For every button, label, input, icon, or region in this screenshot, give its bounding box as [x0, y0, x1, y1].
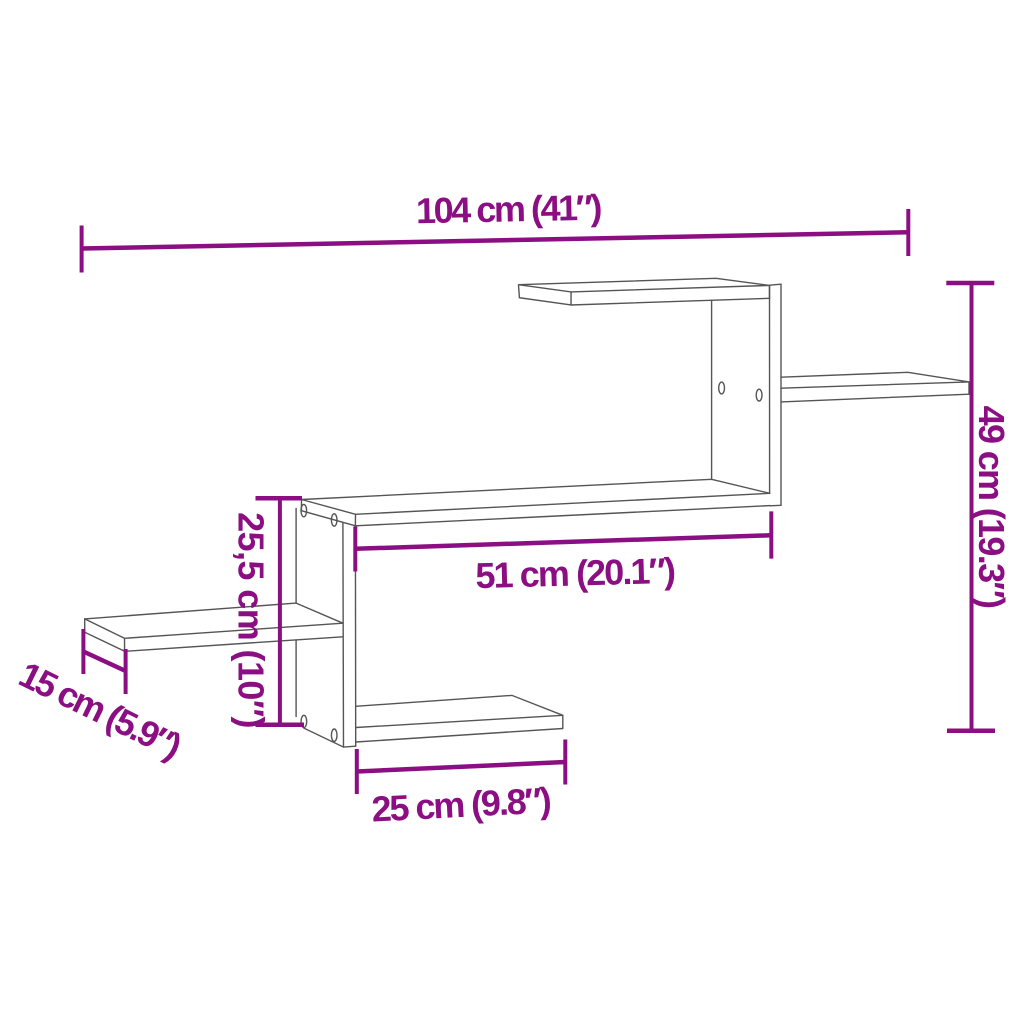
- svg-text:104 cm (41″): 104 cm (41″): [416, 187, 602, 232]
- svg-text:49 cm (19.3″): 49 cm (19.3″): [971, 406, 1012, 608]
- svg-text:51 cm (20.1″): 51 cm (20.1″): [475, 550, 676, 596]
- svg-text:25,5 cm (10″): 25,5 cm (10″): [231, 512, 272, 728]
